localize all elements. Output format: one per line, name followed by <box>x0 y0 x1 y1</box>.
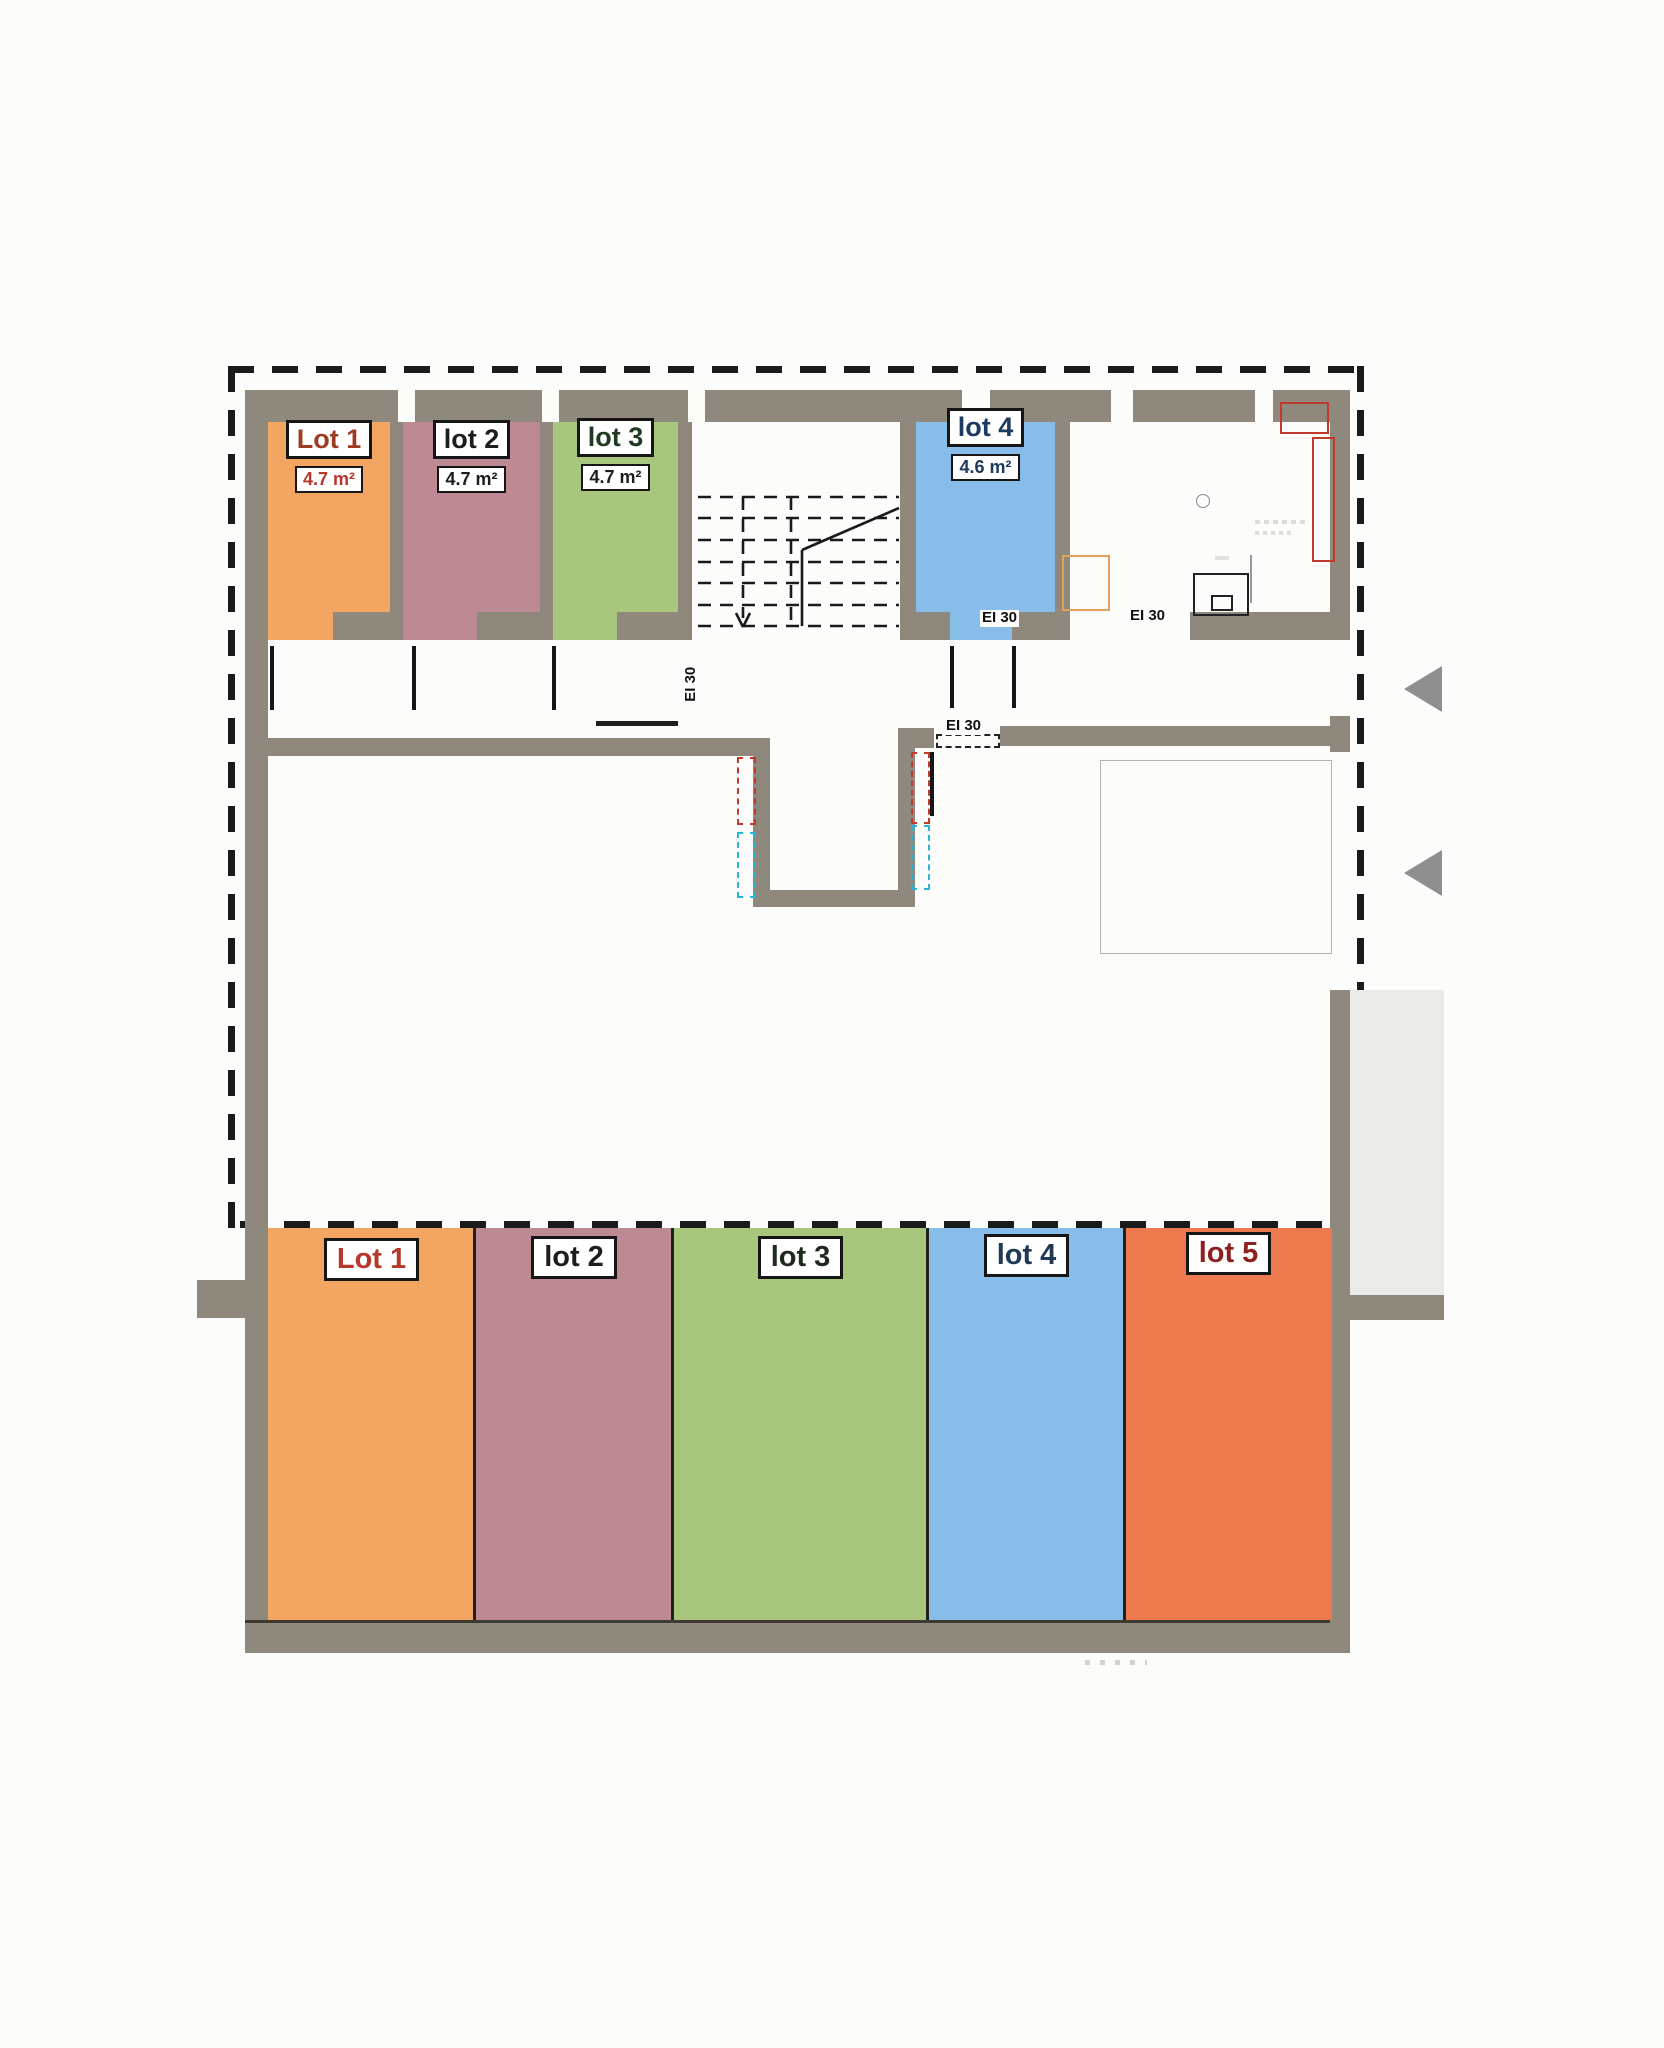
wall-room-bottom <box>617 612 692 640</box>
equipment-box-red <box>1280 402 1329 434</box>
door-leaf <box>412 646 416 710</box>
door-leaf <box>950 646 954 708</box>
door-leaf <box>930 752 934 816</box>
storage-label-box: lot 3 <box>577 418 655 457</box>
parking-stall-lot3 <box>673 1228 928 1620</box>
parking-label-lot2: lot 2 <box>475 1236 673 1279</box>
basement-floor-plan: EI 30 EI 30 EI 30 EI 30 Lot 1 4.7 m² lot… <box>0 0 1664 2048</box>
scan-artifact <box>1215 556 1229 560</box>
storage-label-lot1: Lot 1 4.7 m² <box>268 420 390 493</box>
riser-marker-red <box>911 752 930 824</box>
parking-stall-lot4 <box>928 1228 1125 1620</box>
door-leaf <box>270 646 274 710</box>
riser-marker-cyan <box>911 825 930 890</box>
sink-fixture <box>1193 573 1249 616</box>
stall-divider <box>671 1228 674 1620</box>
entrance-arrow-icon <box>1404 666 1442 712</box>
door-leaf <box>1012 646 1016 708</box>
equipment-box-orange <box>1062 555 1110 611</box>
fire-rating-label-vertical: EI 30 <box>683 649 700 719</box>
garage-zone-outline <box>1100 760 1332 954</box>
parking-label-lot1: Lot 1 <box>268 1238 475 1281</box>
riser-marker-cyan <box>737 832 756 898</box>
pipe-line <box>1250 555 1252 603</box>
wall-divider <box>900 422 916 640</box>
boundary-bottom-line <box>240 1221 1352 1228</box>
stall-divider <box>1123 1228 1126 1620</box>
parking-stall-lot1 <box>268 1228 475 1620</box>
wall-corridor-right <box>1000 726 1332 746</box>
door-leaf <box>552 646 556 710</box>
wall-left-exterior-stub <box>197 1280 250 1318</box>
parking-stall-lot5 <box>1125 1228 1332 1620</box>
stall-divider <box>473 1228 476 1620</box>
wall-thin-line <box>596 721 678 726</box>
fire-rating-label: EI 30 <box>980 610 1019 627</box>
wall-room-bottom <box>333 612 403 640</box>
wall-divider <box>678 422 692 640</box>
wall-right-lower <box>1330 990 1350 1650</box>
scan-artifact <box>1255 531 1295 535</box>
stall-divider <box>926 1228 929 1620</box>
boundary-top-line <box>228 366 1364 373</box>
fire-rating-label: EI 30 <box>1128 608 1167 625</box>
storage-label-lot2: lot 2 4.7 m² <box>403 420 540 493</box>
parking-label-box: lot 3 <box>758 1236 844 1279</box>
wall-notch-bottom <box>753 890 915 907</box>
wall-corridor-left <box>268 738 770 756</box>
parking-label-box: lot 4 <box>984 1234 1070 1277</box>
wall-divider <box>540 422 553 640</box>
top-wall-opening <box>1111 386 1133 426</box>
parking-label-box: Lot 1 <box>324 1238 419 1281</box>
wall-left <box>245 390 268 1650</box>
parking-label-box: lot 2 <box>531 1236 617 1279</box>
parking-label-lot5: lot 5 <box>1125 1232 1332 1275</box>
floor-drain-icon <box>1196 494 1210 508</box>
parking-stall-lot2 <box>475 1228 673 1620</box>
storage-label-lot3: lot 3 4.7 m² <box>553 418 678 491</box>
wall-right-stub <box>1330 716 1350 752</box>
equipment-box-red-tall <box>1312 437 1335 562</box>
scan-artifact <box>1085 1660 1147 1665</box>
storage-label-box: lot 4 <box>947 408 1025 447</box>
storage-area-box: 4.7 m² <box>581 464 649 491</box>
top-wall-opening <box>688 386 705 426</box>
storage-area-box: 4.6 m² <box>951 454 1019 481</box>
parking-label-box: lot 5 <box>1186 1232 1272 1275</box>
parking-label-lot4: lot 4 <box>928 1234 1125 1277</box>
sink-basin <box>1211 595 1233 611</box>
scan-artifact <box>1255 520 1305 524</box>
entrance-arrow-icon <box>1404 850 1442 896</box>
door-swing-dashed <box>936 734 1000 748</box>
storage-label-lot4: lot 4 4.6 m² <box>916 408 1055 481</box>
exterior-ramp <box>1350 990 1444 1295</box>
wall-ramp-bottom <box>1337 1295 1444 1320</box>
wall-room-bottom <box>916 612 950 640</box>
wall-divider <box>390 422 403 640</box>
riser-marker-red <box>737 757 756 825</box>
storage-label-box: Lot 1 <box>286 420 373 459</box>
storage-label-box: lot 2 <box>433 420 511 459</box>
top-wall-opening <box>1255 386 1273 426</box>
parking-label-lot3: lot 3 <box>673 1236 928 1279</box>
wall-corridor-mid <box>898 728 934 748</box>
wall-bottom <box>245 1620 1350 1653</box>
storage-area-box: 4.7 m² <box>437 466 505 493</box>
wall-room-bottom <box>1190 612 1348 640</box>
fire-rating-label: EI 30 <box>944 718 983 735</box>
boundary-left-line <box>228 366 235 1232</box>
storage-area-box: 4.7 m² <box>295 466 363 493</box>
staircase <box>692 422 902 640</box>
wall-room-bottom <box>477 612 553 640</box>
